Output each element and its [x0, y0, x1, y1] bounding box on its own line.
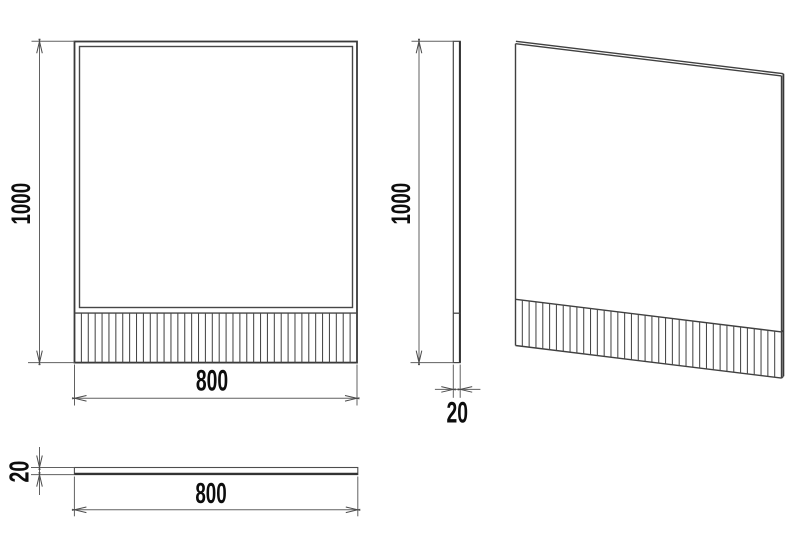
svg-text:1000: 1000: [6, 183, 36, 225]
svg-text:20: 20: [4, 461, 35, 483]
svg-text:800: 800: [195, 478, 226, 510]
svg-text:1000: 1000: [386, 183, 416, 225]
svg-text:20: 20: [447, 396, 468, 429]
svg-text:800: 800: [196, 365, 228, 398]
